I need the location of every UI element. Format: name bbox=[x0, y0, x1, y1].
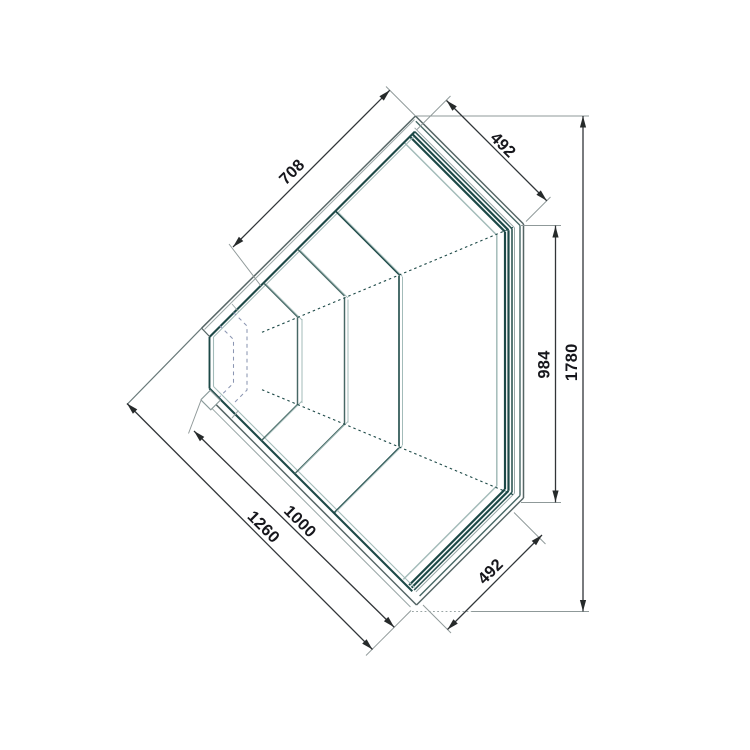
svg-text:1780: 1780 bbox=[563, 343, 581, 381]
svg-text:492: 492 bbox=[474, 555, 507, 588]
svg-text:984: 984 bbox=[535, 350, 553, 379]
svg-text:708: 708 bbox=[276, 156, 309, 189]
svg-text:492: 492 bbox=[487, 129, 520, 162]
